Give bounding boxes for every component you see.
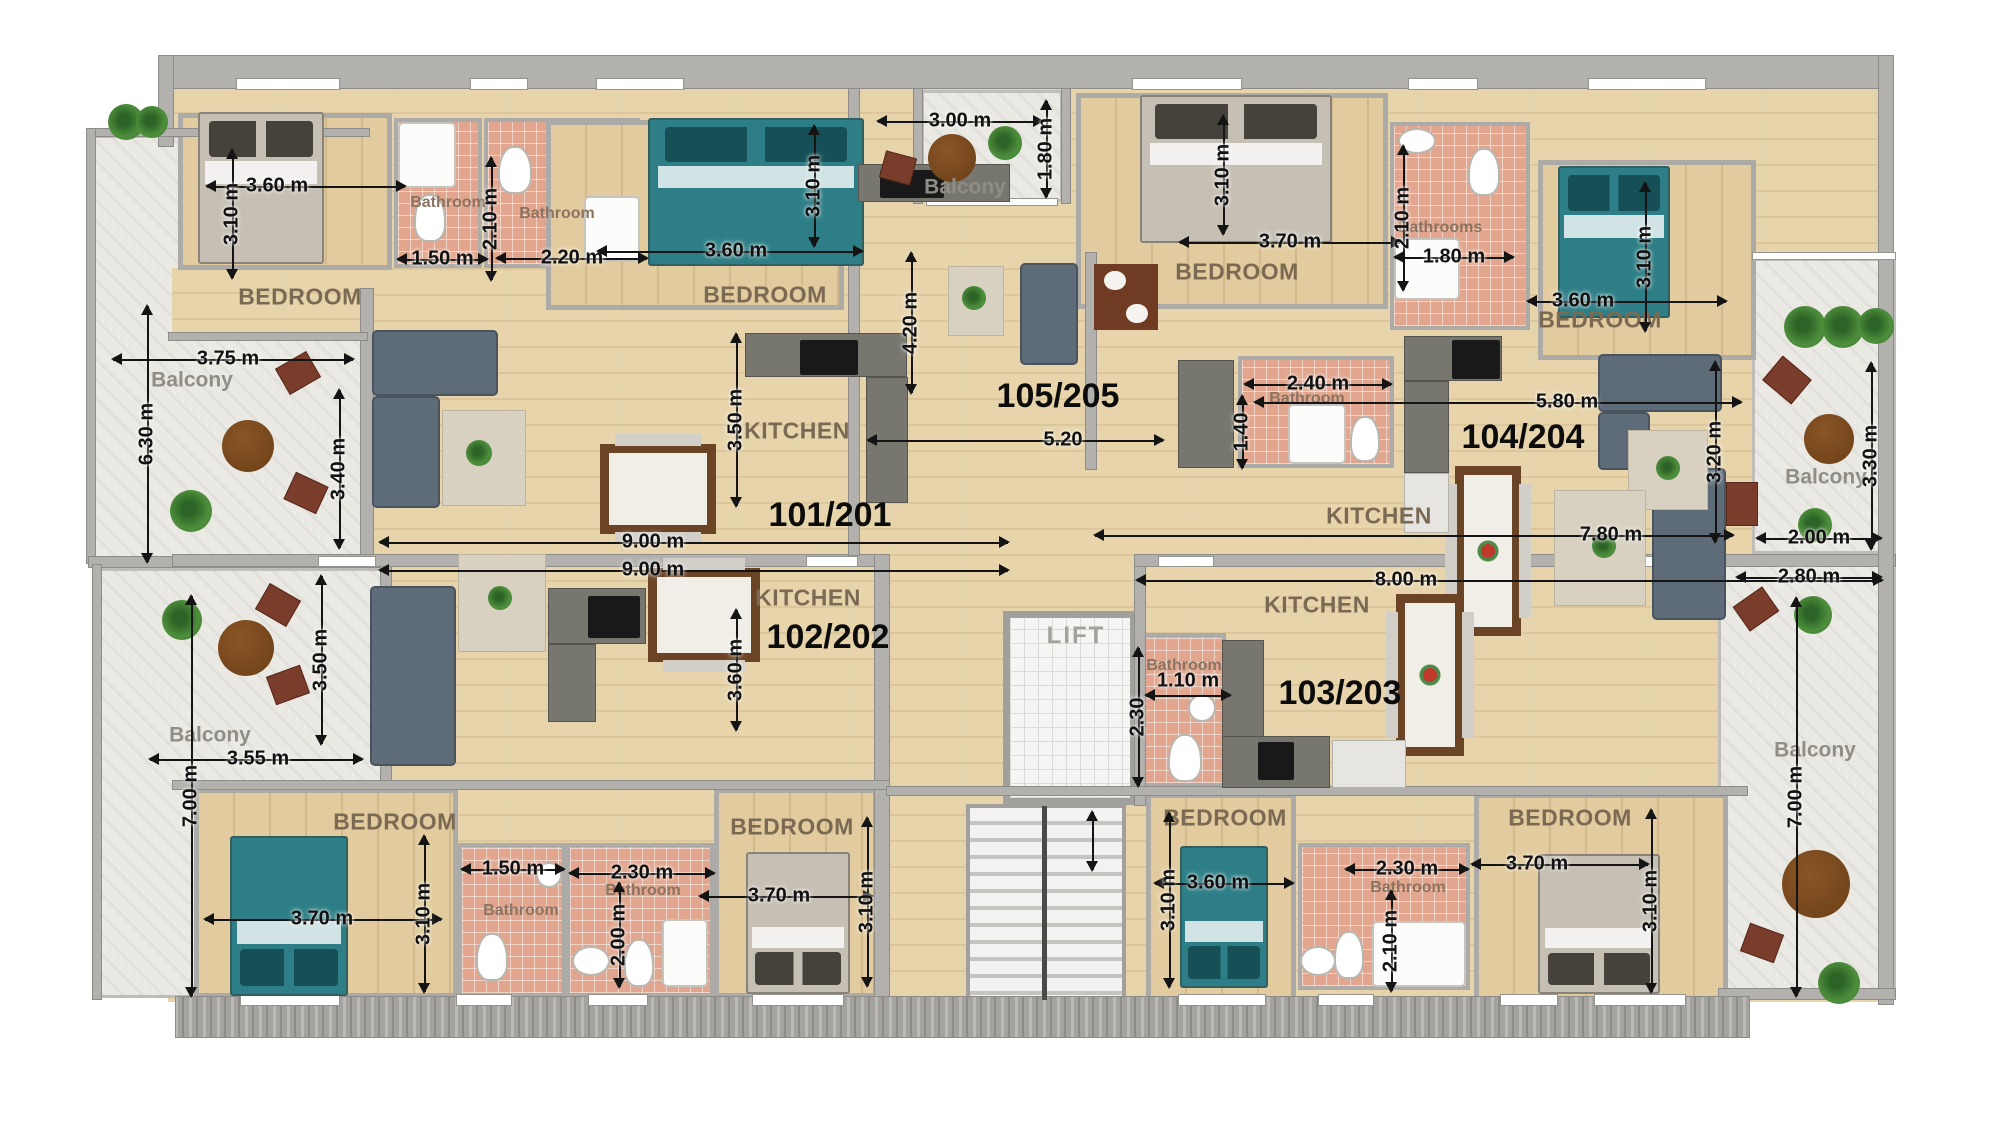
arrowhead-icon	[1086, 810, 1098, 821]
dimension-label: 2.30 m	[1376, 858, 1438, 881]
dimension-vertical: 2.10 m	[1403, 146, 1405, 290]
btable-icon	[1094, 264, 1158, 330]
plant-icon	[136, 106, 168, 138]
arrowhead-icon	[1397, 144, 1409, 155]
dimension-label: 9.00 m	[622, 559, 684, 582]
dimension-label: 5.80 m	[1536, 391, 1598, 414]
unit-label-102-202: 102/202	[767, 620, 890, 654]
dimension-vertical: 3.10 m	[814, 126, 816, 246]
dimension-vertical: 2.10 m	[1391, 891, 1393, 991]
plant-icon	[466, 440, 492, 466]
dimension-label: 1.80 m	[1423, 246, 1485, 269]
arrowhead-icon	[205, 180, 216, 192]
unit-label-104-204: 104/204	[1462, 420, 1585, 454]
sofa-icon	[372, 396, 440, 508]
arrowhead-icon	[905, 384, 917, 395]
arrowhead-icon	[344, 353, 355, 365]
arrowhead-icon	[596, 245, 607, 257]
arrowhead-icon	[808, 124, 820, 135]
plant-icon	[1818, 962, 1860, 1004]
arrowhead-icon	[555, 863, 566, 875]
arrowhead-icon	[1086, 861, 1098, 872]
counter-icon	[1178, 360, 1234, 468]
arrowhead-icon	[185, 594, 197, 605]
wall	[1878, 55, 1894, 1005]
dimension-horizontal: 2.00 m	[1757, 538, 1881, 540]
dimension-horizontal: 2.40 m	[1245, 384, 1391, 386]
dimension-horizontal: 5.80 m	[1255, 402, 1741, 404]
arrowhead-icon	[460, 863, 471, 875]
sink-icon	[1188, 694, 1216, 722]
room-label-bathroom: Bathroom	[519, 206, 595, 222]
dimension-horizontal: 3.00 m	[878, 121, 1042, 123]
wall	[1134, 566, 1146, 806]
dimension-vertical: 7.00 m	[1796, 598, 1798, 996]
dimension-label: 3.30 m	[1860, 425, 1883, 487]
dimension-vertical: 3.30 m	[1871, 363, 1873, 549]
dimension-horizontal: 3.60 m	[598, 251, 862, 253]
dimension-label: 2.10 m	[1392, 187, 1415, 249]
dimension-label: 3.70 m	[748, 885, 810, 908]
dimension-label: 3.10 m	[1640, 870, 1663, 932]
window	[1408, 78, 1478, 90]
window	[1588, 78, 1706, 90]
dimension-vertical: 3.10 m	[1645, 183, 1647, 331]
dimension-label: 6.30 m	[136, 403, 159, 465]
dimension-horizontal: 1.50 m	[462, 869, 564, 871]
plant-icon	[988, 126, 1022, 160]
arrowhead-icon	[698, 890, 709, 902]
dimension-label: 1.80 m	[1035, 118, 1058, 180]
arrowhead-icon	[1385, 982, 1397, 993]
window	[470, 78, 528, 90]
dtable-icon	[600, 444, 716, 534]
arrowhead-icon	[999, 536, 1010, 548]
arrowhead-icon	[861, 977, 873, 988]
dimension-label: 3.10 m	[803, 155, 826, 217]
arrowhead-icon	[853, 245, 864, 257]
arrowhead-icon	[1243, 378, 1254, 390]
arrowhead-icon	[1132, 646, 1144, 657]
room-label-bedroom: BEDROOM	[238, 286, 362, 309]
plant-icon	[170, 490, 212, 532]
dimension-label: 3.70 m	[291, 908, 353, 931]
dimension-label: 7.00 m	[180, 765, 203, 827]
sofa-icon	[372, 330, 498, 396]
arrowhead-icon	[1865, 540, 1877, 551]
arrowhead-icon	[1217, 114, 1229, 125]
counter-icon	[1404, 381, 1449, 473]
dimension-label: 1.50 m	[411, 248, 473, 271]
dimension-label: 3.70 m	[1259, 231, 1321, 254]
arrowhead-icon	[333, 539, 345, 550]
arrowhead-icon	[866, 434, 877, 446]
dtablev-icon	[1396, 594, 1464, 756]
dimension-label: 1.50 m	[482, 858, 544, 881]
window	[596, 78, 684, 90]
window	[588, 994, 648, 1006]
arrowhead-icon	[418, 834, 430, 845]
room-label-bathroom: Bathroom	[410, 195, 486, 211]
arrowhead-icon	[315, 735, 327, 746]
dimension-label: 3.00 m	[929, 110, 991, 133]
arrowhead-icon	[111, 353, 122, 365]
room-label-kitchen: KITCHEN	[744, 420, 850, 443]
arrowhead-icon	[905, 251, 917, 262]
window	[1178, 994, 1266, 1006]
dimension-horizontal: 3.70 m	[1472, 864, 1648, 866]
dimension-vertical: 2.10 m	[491, 158, 493, 280]
arrowhead-icon	[1163, 978, 1175, 989]
plant-icon	[1784, 306, 1826, 348]
counterl-icon	[1332, 740, 1406, 788]
cook-icon	[1452, 340, 1500, 379]
arrowhead-icon	[1865, 361, 1877, 372]
arrowhead-icon	[730, 332, 742, 343]
room-label-bedroom: BEDROOM	[1508, 807, 1632, 830]
dimension-label: 3.50 m	[310, 629, 333, 691]
room-label-balcony: Balcony	[924, 177, 1006, 198]
arrowhead-icon	[730, 608, 742, 619]
arrowhead-icon	[1790, 596, 1802, 607]
toilet-icon	[498, 146, 532, 194]
dimension-label: 9.00 m	[622, 531, 684, 554]
arrowhead-icon	[315, 574, 327, 585]
dimension-vertical: 3.10 m	[1169, 813, 1171, 987]
dimension-label: 2.30	[1127, 698, 1150, 737]
dimension-vertical: 3.10 m	[867, 818, 869, 986]
toilet-icon	[1168, 734, 1202, 782]
dimension-label: 8.00 m	[1375, 569, 1437, 592]
dimension-vertical: 6.30 m	[147, 306, 149, 562]
dimension-label: 3.50 m	[725, 389, 748, 451]
arrowhead-icon	[613, 978, 625, 989]
arrowhead-icon	[1872, 571, 1883, 583]
dimension-vertical: 7.00 m	[191, 596, 193, 996]
arrowhead-icon	[730, 497, 742, 508]
arrowhead-icon	[478, 253, 489, 265]
floor-plan: 101/201102/202103/203104/204105/205BEDRO…	[0, 0, 2000, 1123]
arrowhead-icon	[1385, 889, 1397, 900]
dimension-vertical	[1092, 812, 1094, 870]
arrowhead-icon	[876, 115, 887, 127]
bed-icon	[1140, 95, 1332, 243]
dimension-vertical: 3.10 m	[1651, 810, 1653, 992]
arrowhead-icon	[495, 252, 506, 264]
arrowhead-icon	[1470, 858, 1481, 870]
wfix-icon	[1288, 404, 1346, 464]
arrowhead-icon	[1717, 295, 1728, 307]
rtable-icon	[218, 620, 274, 676]
arrowhead-icon	[485, 271, 497, 282]
arrowhead-icon	[1504, 251, 1515, 263]
plant-icon	[488, 586, 512, 610]
sofa-icon	[370, 586, 456, 766]
dimension-horizontal: 5.20	[868, 440, 1163, 442]
cook-icon	[1258, 742, 1294, 780]
arrowhead-icon	[1639, 181, 1651, 192]
dimension-label: 2.10 m	[480, 188, 503, 250]
dimension-label: 1.10 m	[1157, 670, 1219, 693]
window	[236, 78, 340, 90]
dimension-label: 3.10 m	[221, 183, 244, 245]
arrowhead-icon	[999, 564, 1010, 576]
arrowhead-icon	[141, 553, 153, 564]
dimension-vertical: 4.20 m	[911, 253, 913, 393]
sink-icon	[1300, 946, 1336, 976]
unit-label-103-203: 103/203	[1279, 676, 1402, 710]
arrowhead-icon	[353, 753, 364, 765]
dimension-horizontal: 8.00 m	[1137, 580, 1882, 582]
arrowhead-icon	[396, 180, 407, 192]
dimension-label: 3.40 m	[328, 438, 351, 500]
plant-icon	[1656, 456, 1680, 480]
wfix-icon	[398, 122, 456, 188]
dimension-label: 2.20 m	[541, 247, 603, 270]
arrowhead-icon	[1645, 983, 1657, 994]
arrowhead-icon	[185, 987, 197, 998]
arrowhead-icon	[148, 753, 159, 765]
arrowhead-icon	[1526, 295, 1537, 307]
arrowhead-icon	[1732, 396, 1743, 408]
dimension-label: 2.10 m	[1380, 910, 1403, 972]
arrowhead-icon	[705, 867, 716, 879]
room-label-balcony: Balcony	[151, 370, 233, 391]
arrowhead-icon	[1790, 987, 1802, 998]
room-label-bathroom: Bathroom	[483, 903, 559, 919]
window	[1500, 994, 1558, 1006]
dimension-vertical: 3.60 m	[736, 610, 738, 730]
arrowhead-icon	[1735, 571, 1746, 583]
arrowhead-icon	[1253, 396, 1264, 408]
window	[1132, 78, 1242, 90]
toilet-icon	[1350, 416, 1380, 462]
unit-label-101-201: 101/201	[769, 498, 892, 532]
arrowhead-icon	[1639, 858, 1650, 870]
room-label-kitchen: KITCHEN	[1264, 594, 1370, 617]
arrowhead-icon	[1040, 188, 1052, 199]
toilet-icon	[476, 933, 508, 981]
arrowhead-icon	[861, 816, 873, 827]
arrowhead-icon	[203, 913, 214, 925]
arrowhead-icon	[226, 269, 238, 280]
dimension-label: 3.55 m	[227, 748, 289, 771]
sofa-icon	[1020, 263, 1078, 365]
room-label-balcony: Balcony	[169, 725, 251, 746]
arrowhead-icon	[1709, 533, 1721, 544]
dimension-label: 3.10 m	[1634, 226, 1657, 288]
dimension-label: 3.70 m	[1506, 853, 1568, 876]
arrowhead-icon	[1724, 529, 1735, 541]
toilet-icon	[1468, 148, 1500, 196]
arrowhead-icon	[1397, 281, 1409, 292]
dimension-vertical: 3.40 m	[339, 390, 341, 548]
dimension-label: 2.40 m	[1287, 373, 1349, 396]
arrowhead-icon	[568, 867, 579, 879]
arrowhead-icon	[485, 156, 497, 167]
dimension-label: 2.00 m	[608, 904, 631, 966]
arrowhead-icon	[1236, 394, 1248, 405]
dimension-label: 3.10 m	[413, 883, 436, 945]
dimension-horizontal: 2.20 m	[497, 258, 647, 260]
dimension-label: 7.80 m	[1580, 524, 1642, 547]
dimension-label: 3.60 m	[1552, 290, 1614, 313]
window	[456, 994, 512, 1006]
dimension-horizontal: 9.00 m	[380, 542, 1008, 544]
arm-icon	[1726, 482, 1758, 526]
window	[1318, 994, 1374, 1006]
dimension-vertical: 3.10 m	[232, 150, 234, 278]
arrowhead-icon	[1709, 360, 1721, 371]
arrowhead-icon	[1645, 808, 1657, 819]
window	[318, 556, 376, 567]
dimension-horizontal: 3.60 m	[1528, 301, 1726, 303]
wall	[86, 128, 96, 564]
room-label-balcony: Balcony	[1785, 467, 1867, 488]
window	[1594, 994, 1686, 1006]
dimension-label: 7.00 m	[1785, 766, 1808, 828]
sink-icon	[572, 946, 610, 976]
dimension-horizontal: 2.80 m	[1737, 577, 1881, 579]
window	[806, 556, 858, 567]
dimension-horizontal: 3.70 m	[205, 919, 441, 921]
arrowhead-icon	[1135, 574, 1146, 586]
unit-label-105-205: 105/205	[997, 379, 1120, 413]
dimension-label: 3.60 m	[246, 175, 308, 198]
wfix-icon	[662, 919, 708, 987]
dimension-label: 4.20 m	[900, 292, 923, 354]
cook-icon	[800, 340, 858, 375]
room-label-kitchen: KITCHEN	[1326, 505, 1432, 528]
dimension-horizontal: 7.80 m	[1095, 535, 1733, 537]
bed-icon	[746, 852, 850, 994]
arrowhead-icon	[1163, 811, 1175, 822]
plant-icon	[962, 286, 986, 310]
dimension-horizontal: 3.75 m	[113, 359, 353, 361]
window	[752, 994, 844, 1006]
arrowhead-icon	[1382, 378, 1393, 390]
rtable-icon	[1804, 414, 1854, 464]
bed-icon	[1180, 846, 1268, 988]
arrowhead-icon	[1217, 225, 1229, 236]
arrowhead-icon	[333, 388, 345, 399]
room-label-kitchen: KITCHEN	[755, 587, 861, 610]
room-label-balcony: Balcony	[1774, 740, 1856, 761]
dimension-label: 2.00 m	[1788, 527, 1850, 550]
dimension-horizontal: 2.30 m	[1346, 869, 1468, 871]
dimension-horizontal: 2.30 m	[570, 873, 714, 875]
dimension-label: 3.60 m	[1187, 872, 1249, 895]
arrowhead-icon	[638, 252, 649, 264]
rtable-icon	[222, 420, 274, 472]
arrowhead-icon	[1755, 532, 1766, 544]
window	[1158, 556, 1214, 567]
wall	[92, 564, 102, 1000]
arrowhead-icon	[1344, 863, 1355, 875]
arrowhead-icon	[808, 237, 820, 248]
dimension-vertical: 2.30	[1138, 648, 1140, 786]
plant-icon	[162, 600, 202, 640]
room-label-bedroom: BEDROOM	[1175, 261, 1299, 284]
arrowhead-icon	[1639, 322, 1651, 333]
wall	[172, 780, 890, 790]
arrowhead-icon	[396, 253, 407, 265]
dimension-vertical: 3.10 m	[1223, 116, 1225, 234]
arrowhead-icon	[1178, 236, 1189, 248]
dimension-vertical: 3.20 m	[1715, 362, 1717, 542]
room-label-bathroom: Bathroom	[1370, 880, 1446, 896]
room-label-bedroom: BEDROOM	[1163, 807, 1287, 830]
dimension-vertical: 1.80 m	[1046, 101, 1048, 197]
dimension-label: 2.80 m	[1778, 566, 1840, 589]
dimension-horizontal: 3.70 m	[700, 896, 872, 898]
arrowhead-icon	[141, 304, 153, 315]
arrowhead-icon	[613, 881, 625, 892]
arrowhead-icon	[378, 536, 389, 548]
dimension-label: 3.60 m	[705, 240, 767, 263]
room-label-bedroom: BEDROOM	[333, 811, 457, 834]
window	[1752, 252, 1896, 260]
arrowhead-icon	[1093, 529, 1104, 541]
dimension-label: 3.10 m	[1212, 144, 1235, 206]
room-label-bedroom: BEDROOM	[730, 816, 854, 839]
arrowhead-icon	[1221, 689, 1232, 701]
dimension-label: 1.40	[1231, 413, 1254, 452]
dimension-vertical: 3.10 m	[424, 836, 426, 992]
arrowhead-icon	[378, 564, 389, 576]
dimension-label: 3.20 m	[1704, 421, 1727, 483]
wall	[168, 332, 368, 341]
arrowhead-icon	[1040, 99, 1052, 110]
arrowhead-icon	[1284, 877, 1295, 889]
dimension-vertical: 3.50 m	[321, 576, 323, 744]
cook-icon	[588, 596, 640, 638]
dimension-vertical: 1.40	[1242, 396, 1244, 468]
dimension-label: 3.75 m	[197, 348, 259, 371]
dimension-label: 5.20	[1044, 429, 1083, 452]
dimension-horizontal: 9.00 m	[380, 570, 1008, 572]
room-label-bedroom: BEDROOM	[703, 284, 827, 307]
dimension-label: 3.60 m	[725, 639, 748, 701]
dimension-horizontal: 1.50 m	[398, 259, 487, 261]
room-label-lift: LIFT	[1047, 624, 1106, 648]
arrowhead-icon	[1132, 777, 1144, 788]
arrowhead-icon	[418, 983, 430, 994]
counter-icon	[548, 644, 596, 722]
arrowhead-icon	[1236, 459, 1248, 470]
dimension-label: 3.10 m	[856, 871, 879, 933]
arrowhead-icon	[226, 148, 238, 159]
dimension-vertical: 2.00 m	[619, 883, 621, 987]
dtablev-icon	[1455, 466, 1521, 636]
dimension-label: 3.10 m	[1158, 869, 1181, 931]
dimension-horizontal: 3.70 m	[1180, 242, 1400, 244]
dimension-horizontal: 1.10 m	[1146, 695, 1230, 697]
arrowhead-icon	[730, 721, 742, 732]
rtable-icon	[1782, 850, 1850, 918]
toilet-icon	[1334, 931, 1364, 979]
rail-icon	[1042, 806, 1047, 1000]
plant-icon	[1858, 308, 1894, 344]
wall	[1061, 88, 1071, 204]
dimension-horizontal: 1.80 m	[1395, 257, 1513, 259]
arrowhead-icon	[1154, 434, 1165, 446]
dimension-vertical: 3.50 m	[736, 334, 738, 506]
dimension-horizontal: 3.55 m	[150, 759, 362, 761]
arrowhead-icon	[1459, 863, 1470, 875]
